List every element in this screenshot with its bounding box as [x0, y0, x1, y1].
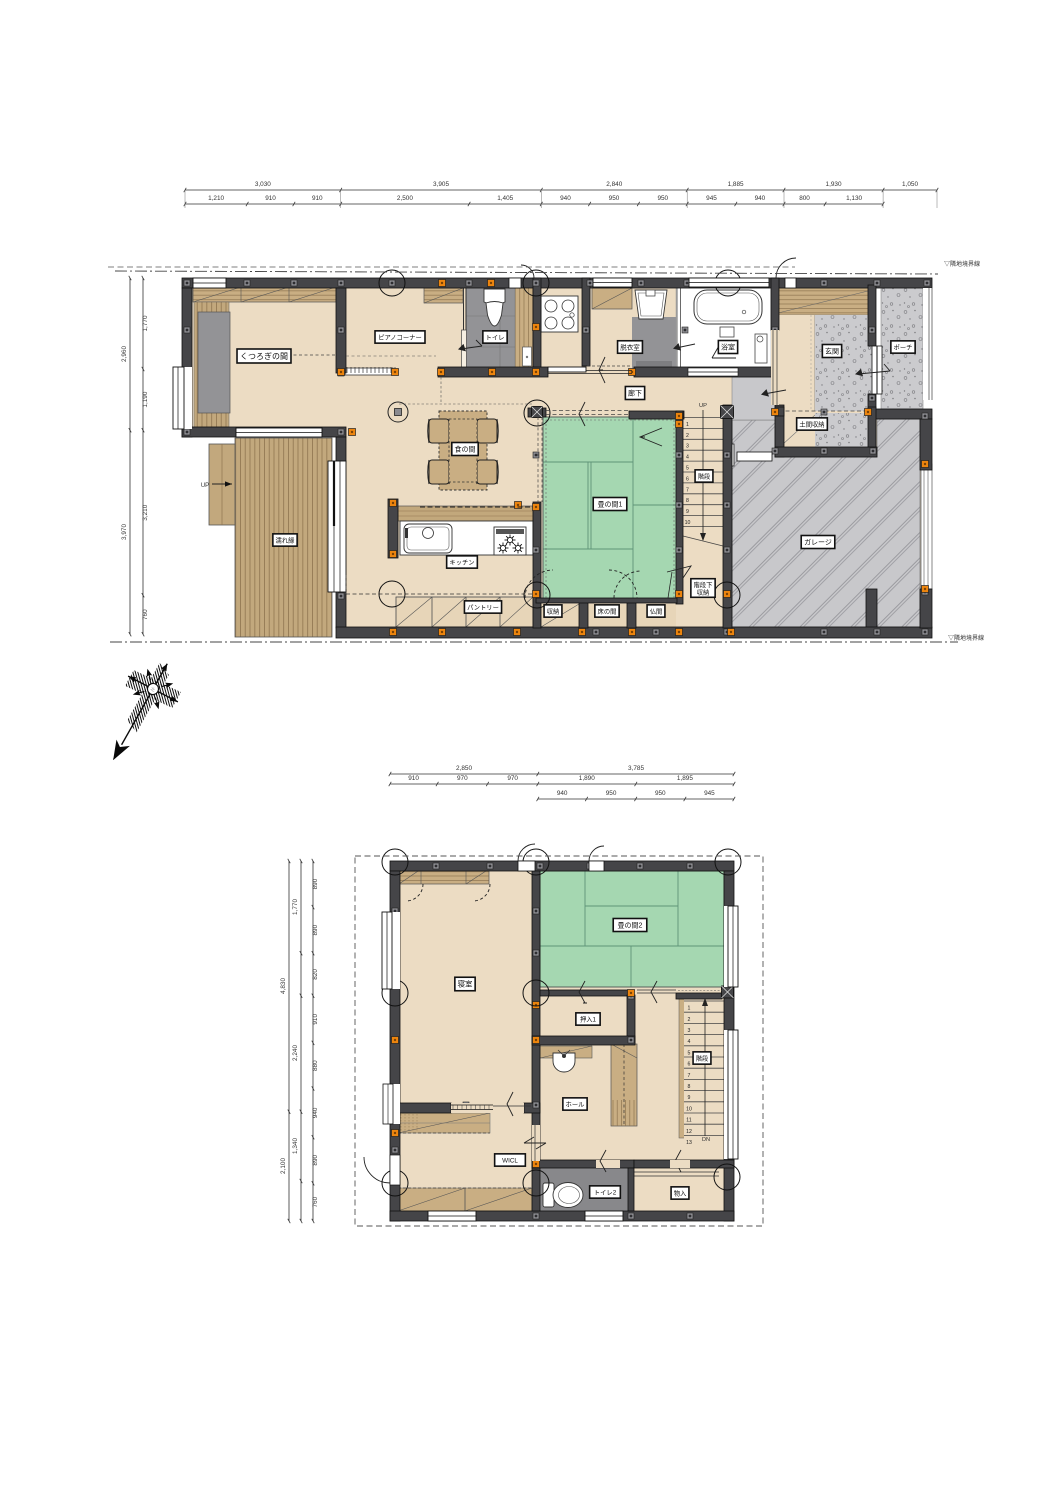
svg-text:3,785: 3,785	[628, 765, 644, 772]
svg-text:床の間: 床の間	[598, 606, 617, 615]
svg-text:2,960: 2,960	[121, 346, 128, 362]
svg-text:階段下: 階段下	[694, 580, 713, 589]
svg-text:3,210: 3,210	[142, 504, 149, 520]
svg-text:1: 1	[688, 1006, 691, 1012]
svg-text:940: 940	[557, 790, 568, 797]
svg-text:4: 4	[688, 1039, 691, 1045]
svg-text:2,240: 2,240	[292, 1045, 299, 1061]
svg-text:7: 7	[688, 1073, 691, 1079]
svg-text:パントリー: パントリー	[467, 603, 499, 611]
svg-text:廊下: 廊下	[628, 389, 642, 398]
svg-text:2: 2	[686, 433, 689, 439]
svg-text:キッチン: キッチン	[449, 558, 474, 566]
svg-text:浴室: 浴室	[721, 343, 735, 352]
svg-text:濡れ縁: 濡れ縁	[276, 535, 296, 544]
svg-text:945: 945	[706, 195, 717, 202]
svg-text:2,840: 2,840	[606, 181, 622, 188]
svg-text:1,770: 1,770	[292, 899, 299, 915]
svg-text:945: 945	[704, 790, 715, 797]
svg-text:940: 940	[312, 1107, 319, 1118]
svg-text:13: 13	[686, 1140, 692, 1146]
svg-text:3,905: 3,905	[433, 181, 449, 188]
svg-text:970: 970	[507, 775, 518, 782]
svg-text:3: 3	[688, 1028, 691, 1034]
svg-text:950: 950	[655, 790, 666, 797]
svg-text:1,890: 1,890	[579, 775, 595, 782]
svg-text:1,130: 1,130	[846, 195, 862, 202]
svg-text:5: 5	[686, 466, 689, 472]
svg-text:UP: UP	[699, 403, 707, 409]
svg-text:890: 890	[312, 878, 319, 889]
svg-text:収納: 収納	[697, 587, 710, 596]
svg-text:1: 1	[686, 422, 689, 428]
svg-text:1,895: 1,895	[677, 775, 693, 782]
svg-text:950: 950	[609, 195, 620, 202]
svg-text:880: 880	[312, 1060, 319, 1071]
svg-text:土間収納: 土間収納	[799, 419, 824, 428]
svg-text:820: 820	[312, 969, 319, 980]
svg-text:12: 12	[686, 1129, 692, 1135]
svg-text:940: 940	[560, 195, 571, 202]
svg-text:1,210: 1,210	[208, 195, 224, 202]
svg-text:890: 890	[312, 924, 319, 935]
svg-text:6: 6	[686, 476, 689, 482]
svg-text:11: 11	[686, 1118, 691, 1124]
svg-text:940: 940	[755, 195, 766, 202]
svg-text:脱衣室: 脱衣室	[620, 342, 640, 351]
svg-text:押入1: 押入1	[580, 1014, 597, 1023]
svg-text:950: 950	[657, 195, 668, 202]
svg-text:寝室: 寝室	[458, 979, 473, 989]
svg-text:5: 5	[688, 1050, 691, 1056]
svg-text:910: 910	[408, 775, 419, 782]
svg-text:1,050: 1,050	[902, 181, 918, 188]
svg-text:2,500: 2,500	[397, 195, 413, 202]
svg-text:トイレ2: トイレ2	[594, 1189, 617, 1196]
svg-text:ガレージ: ガレージ	[804, 538, 832, 547]
svg-text:ピアノコーナー: ピアノコーナー	[378, 333, 422, 341]
svg-text:3: 3	[686, 444, 689, 450]
svg-text:910: 910	[265, 195, 276, 202]
svg-text:4: 4	[686, 455, 689, 461]
svg-text:畳の間1: 畳の間1	[598, 501, 623, 509]
svg-text:仏間: 仏間	[650, 607, 663, 615]
svg-text:970: 970	[457, 775, 468, 782]
svg-text:▽隣地境界線: ▽隣地境界線	[944, 260, 980, 268]
svg-text:760: 760	[312, 1196, 319, 1207]
svg-text:800: 800	[799, 195, 810, 202]
svg-text:ホール: ホール	[566, 1100, 585, 1108]
svg-text:3,970: 3,970	[121, 524, 128, 540]
svg-text:UP: UP	[201, 483, 209, 489]
svg-text:7: 7	[686, 487, 689, 493]
svg-text:10: 10	[686, 1106, 692, 1112]
svg-text:890: 890	[312, 1154, 319, 1165]
svg-text:1,770: 1,770	[142, 315, 149, 331]
svg-text:6: 6	[688, 1062, 691, 1068]
svg-text:階段: 階段	[696, 1053, 709, 1062]
svg-text:2,850: 2,850	[456, 765, 472, 772]
svg-text:畳の間2: 畳の間2	[618, 922, 643, 930]
svg-text:玄関: 玄関	[825, 347, 839, 356]
svg-text:1,405: 1,405	[497, 195, 513, 202]
svg-text:▽隣地境界線: ▽隣地境界線	[948, 634, 984, 642]
svg-text:3,030: 3,030	[255, 181, 271, 188]
svg-text:くつろぎの間: くつろぎの間	[240, 351, 288, 361]
svg-text:950: 950	[606, 790, 617, 797]
svg-text:WICL: WICL	[502, 1157, 518, 1164]
svg-text:760: 760	[142, 609, 149, 620]
svg-text:食の間: 食の間	[455, 445, 476, 454]
svg-text:1,885: 1,885	[728, 181, 744, 188]
svg-text:収納: 収納	[547, 606, 560, 615]
svg-text:8: 8	[688, 1084, 691, 1090]
svg-text:910: 910	[312, 1014, 319, 1025]
svg-text:9: 9	[686, 509, 689, 515]
svg-text:10: 10	[685, 520, 691, 526]
svg-text:階段: 階段	[698, 471, 711, 480]
svg-text:ポーチ: ポーチ	[894, 343, 913, 351]
svg-text:トイレ: トイレ	[486, 334, 505, 341]
svg-text:910: 910	[312, 195, 323, 202]
svg-text:1,340: 1,340	[292, 1138, 299, 1154]
svg-text:1,190: 1,190	[142, 391, 149, 407]
svg-text:8: 8	[686, 498, 689, 504]
svg-text:物入: 物入	[674, 1188, 687, 1197]
svg-text:DN: DN	[702, 1137, 710, 1143]
svg-text:4,830: 4,830	[280, 978, 287, 994]
svg-text:2,100: 2,100	[280, 1158, 287, 1174]
svg-text:2: 2	[688, 1017, 691, 1023]
svg-text:1,930: 1,930	[826, 181, 842, 188]
svg-text:9: 9	[688, 1095, 691, 1101]
